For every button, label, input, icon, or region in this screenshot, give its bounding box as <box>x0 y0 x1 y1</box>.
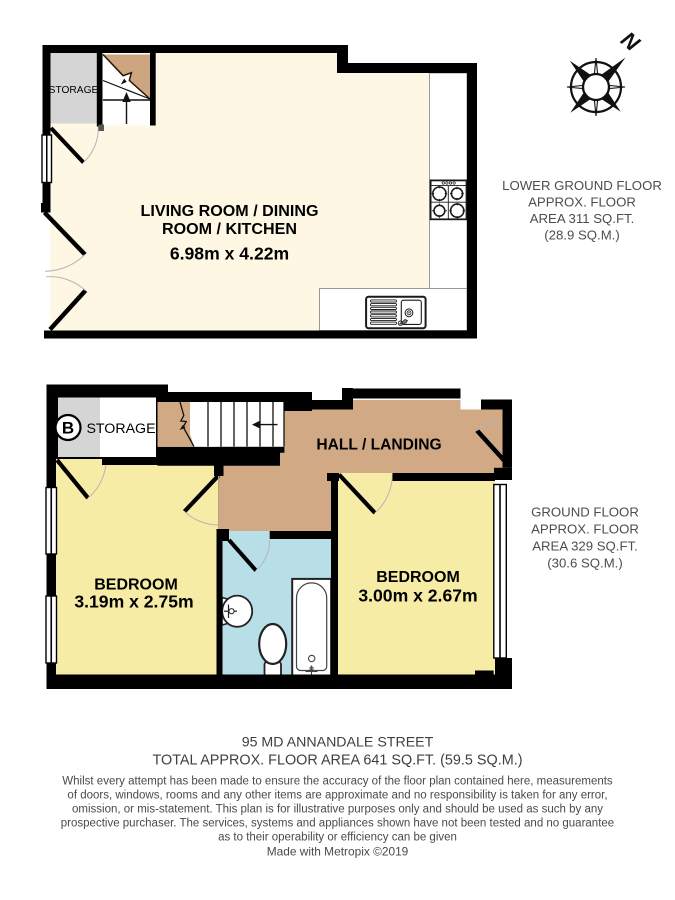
svg-text:LIVING ROOM / DINING: LIVING ROOM / DINING <box>141 202 319 220</box>
svg-text:of doors, windows, rooms and a: of doors, windows, rooms and any other i… <box>67 790 607 802</box>
svg-text:6.98m x 4.22m: 6.98m x 4.22m <box>170 244 289 264</box>
svg-text:APPROX. FLOOR: APPROX. FLOOR <box>528 195 636 210</box>
svg-text:LOWER GROUND FLOOR: LOWER GROUND FLOOR <box>502 178 662 193</box>
svg-text:(28.9 SQ.M.): (28.9 SQ.M.) <box>544 228 619 243</box>
svg-text:TOTAL APPROX. FLOOR AREA 641 S: TOTAL APPROX. FLOOR AREA 641 SQ.FT. (59.… <box>152 753 522 769</box>
svg-text:Whilst every attempt has been: Whilst every attempt has been made to en… <box>62 776 613 788</box>
svg-text:omission, or mis-statement. Th: omission, or mis-statement. This plan is… <box>72 804 603 816</box>
svg-text:STORAGE: STORAGE <box>86 421 155 437</box>
svg-text:(30.6 SQ.M.): (30.6 SQ.M.) <box>547 556 622 571</box>
svg-text:AREA 311 SQ.FT.: AREA 311 SQ.FT. <box>530 211 635 226</box>
svg-text:AREA 329 SQ.FT.: AREA 329 SQ.FT. <box>532 539 638 554</box>
svg-text:STORAGE: STORAGE <box>49 85 99 96</box>
svg-text:ROOM / KITCHEN: ROOM / KITCHEN <box>162 220 297 238</box>
svg-text:as to their operability or eff: as to their operability or efficiency ca… <box>218 831 457 843</box>
svg-text:APPROX. FLOOR: APPROX. FLOOR <box>531 522 639 537</box>
svg-text:Made with Metropix ©2019: Made with Metropix ©2019 <box>267 845 409 859</box>
svg-text:3.19m x 2.75m: 3.19m x 2.75m <box>74 592 193 612</box>
svg-text:95 MD ANNANDALE STREET: 95 MD ANNANDALE STREET <box>242 735 434 751</box>
svg-text:3.00m x 2.67m: 3.00m x 2.67m <box>358 586 477 606</box>
svg-text:B: B <box>62 419 74 438</box>
svg-text:prospective purchaser. The ser: prospective purchaser. The services, sys… <box>61 818 614 830</box>
svg-text:HALL / LANDING: HALL / LANDING <box>316 437 441 454</box>
svg-text:GROUND FLOOR: GROUND FLOOR <box>531 505 639 520</box>
svg-text:BEDROOM: BEDROOM <box>376 569 460 586</box>
